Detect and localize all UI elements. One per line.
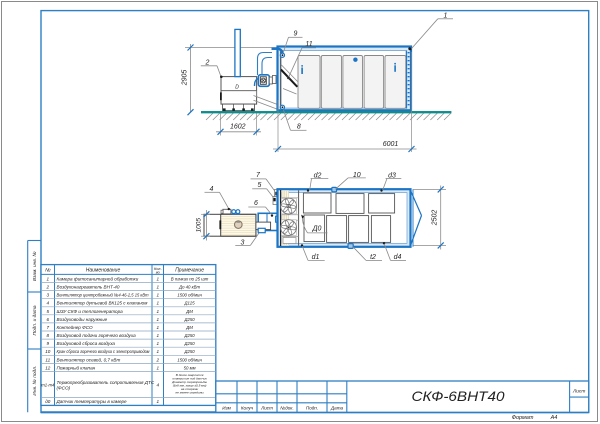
svg-text:1: 1 [157, 349, 160, 354]
svg-text:12: 12 [45, 365, 51, 370]
svg-text:5: 5 [47, 309, 50, 314]
svg-text:Вентилятор дутьевой ВК125 с кл: Вентилятор дутьевой ВК125 с клапаном [57, 300, 149, 306]
svg-text:4: 4 [47, 301, 50, 306]
svg-text:А4: А4 [550, 415, 558, 421]
svg-text:1: 1 [157, 293, 160, 298]
svg-text:Формат: Формат [512, 415, 534, 421]
svg-text:т1-т4: т1-т4 [41, 383, 55, 388]
svg-text:4: 4 [210, 186, 214, 193]
svg-text:ДМ: ДМ [185, 309, 193, 314]
svg-text:Подп.: Подп. [306, 406, 318, 411]
svg-text:Контейнер ФСО: Контейнер ФСО [57, 324, 94, 330]
svg-text:Вентилятор центробежный №4-46-: Вентилятор центробежный №4-46-2,5 15 кВт [57, 292, 149, 298]
svg-text:Колуч: Колуч [241, 406, 254, 411]
svg-text:Датчик температуры в камере: Датчик температуры в камере [56, 399, 128, 404]
svg-text:(ФСО): (ФСО) [57, 386, 71, 391]
svg-text:Примечание: Примечание [175, 268, 204, 274]
svg-text:Воздуховод подачи горячего воз: Воздуховод подачи горячего воздуха [57, 333, 137, 338]
svg-text:Воздуховод сброса воздуха: Воздуховод сброса воздуха [57, 341, 116, 346]
svg-text:1500 об/мин: 1500 об/мин [177, 293, 202, 298]
svg-text:1: 1 [157, 285, 160, 290]
svg-text:Д250: Д250 [183, 333, 195, 338]
svg-text:8: 8 [297, 124, 301, 131]
svg-text:СКФ-6ВНТ40: СКФ-6ВНТ40 [412, 388, 505, 404]
svg-text:D: D [235, 84, 239, 90]
svg-text:1: 1 [157, 365, 160, 370]
svg-text:Кран сброса горячего воздуха с: Кран сброса горячего воздуха с электропр… [57, 349, 151, 354]
svg-text:6001: 6001 [383, 141, 399, 148]
svg-text:5: 5 [258, 182, 262, 189]
svg-text:1500 об/мин: 1500 об/мин [177, 357, 202, 362]
svg-text:1: 1 [47, 276, 50, 281]
svg-text:Д125: Д125 [183, 301, 195, 306]
svg-text:Взам. инв. №: Взам. инв. № [32, 251, 38, 281]
svg-text:Д250: Д250 [183, 341, 195, 346]
svg-text:2: 2 [156, 357, 160, 362]
svg-text:До 40 кВт: До 40 кВт [178, 285, 200, 290]
svg-text:1602: 1602 [230, 124, 246, 131]
svg-text:3: 3 [47, 293, 50, 298]
svg-text:6: 6 [254, 200, 258, 207]
svg-text:№: № [45, 268, 51, 274]
svg-text:6: 6 [47, 317, 50, 322]
svg-text:Изм: Изм [222, 406, 231, 411]
svg-text:11: 11 [305, 41, 312, 48]
svg-text:7: 7 [47, 325, 50, 330]
svg-text:Воздухонагреватель ВНТ-40: Воздухонагреватель ВНТ-40 [57, 285, 120, 290]
svg-text:во: во [156, 271, 160, 275]
svg-text:1: 1 [157, 276, 160, 281]
svg-text:10: 10 [45, 349, 51, 354]
svg-text:Д0: Д0 [312, 226, 322, 233]
svg-text:ШЗУ СКФ и теплогенератора: ШЗУ СКФ и теплогенератора [57, 309, 124, 314]
svg-text:8: 8 [47, 333, 50, 338]
svg-text:ДМ: ДМ [185, 325, 193, 330]
svg-text:№док.: №док. [280, 406, 294, 411]
svg-text:9: 9 [47, 341, 50, 346]
svg-text:Подп. и дата: Подп. и дата [32, 305, 38, 335]
svg-text:50 мм: 50 мм [184, 365, 196, 370]
svg-text:1: 1 [157, 309, 160, 314]
svg-text:Д250: Д250 [183, 349, 195, 354]
svg-text:1005: 1005 [196, 218, 203, 233]
svg-text:9: 9 [294, 31, 298, 38]
svg-text:Лист: Лист [260, 406, 273, 411]
svg-text:2905: 2905 [182, 70, 189, 87]
svg-text:4: 4 [157, 383, 160, 388]
svg-text:д0: д0 [45, 399, 51, 404]
svg-text:1: 1 [157, 325, 160, 330]
svg-text:Воздуховоды наружные: Воздуховоды наружные [57, 317, 108, 322]
svg-text:2: 2 [46, 285, 50, 290]
svg-text:Инв. № подл.: Инв. № подл. [32, 366, 38, 396]
svg-text:11: 11 [45, 357, 50, 362]
svg-text:1: 1 [157, 341, 160, 346]
svg-text:1: 1 [157, 301, 160, 306]
svg-text:1: 1 [157, 399, 160, 404]
svg-text:Наименование: Наименование [86, 268, 121, 274]
svg-text:Камера фитосанитарной обработк: Камера фитосанитарной обработки [57, 275, 139, 281]
svg-text:2502: 2502 [431, 210, 438, 227]
svg-text:Вентилятор осевой, 0,7 кВт: Вентилятор осевой, 0,7 кВт [57, 356, 121, 362]
svg-text:Пожарный клапан: Пожарный клапан [57, 364, 96, 370]
svg-text:Дата: Дата [330, 406, 344, 411]
svg-text:1: 1 [157, 317, 160, 322]
svg-text:1: 1 [157, 333, 160, 338]
svg-text:не менее середины: не менее середины [175, 391, 204, 395]
svg-text:Термопреобразователь сопротивл: Термопреобразователь сопротивления ДТС [57, 380, 155, 385]
svg-text:Лист: Лист [572, 389, 585, 395]
svg-text:В пачках по 25 шт: В пачках по 25 шт [171, 276, 209, 281]
svg-text:Д250: Д250 [183, 317, 195, 322]
